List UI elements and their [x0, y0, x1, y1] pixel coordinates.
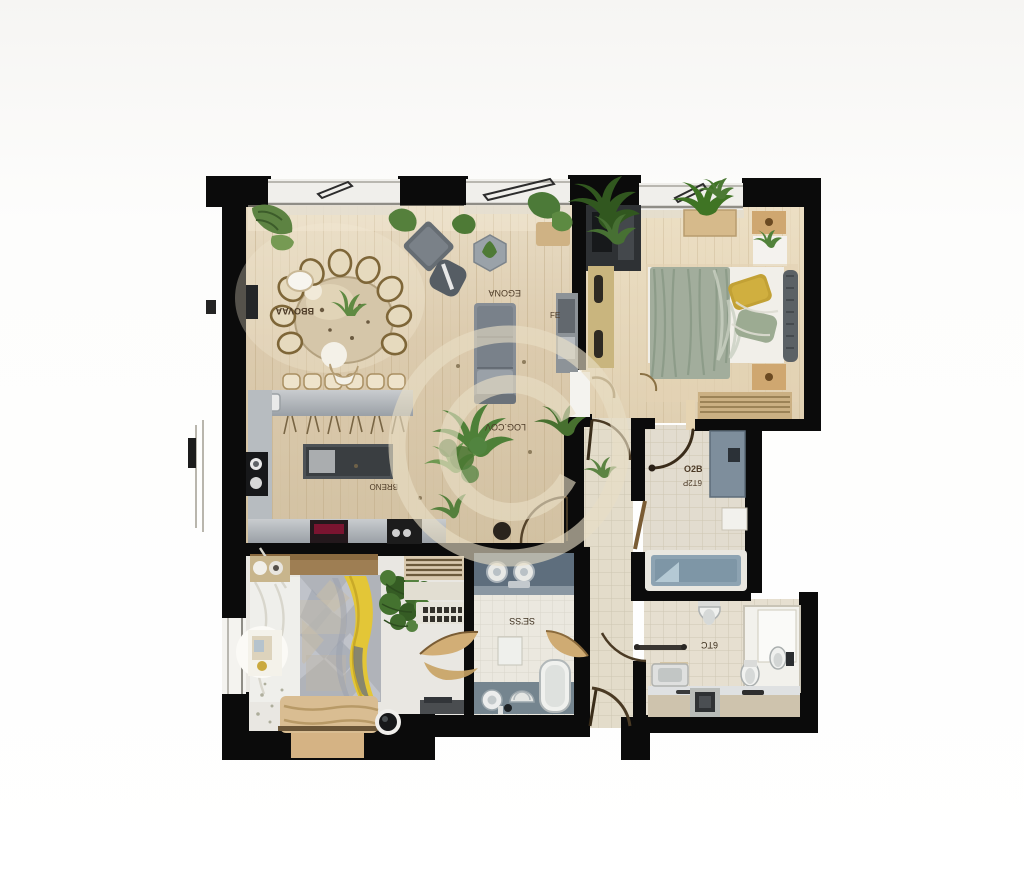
svg-text:BRENO: BRENO	[370, 482, 398, 491]
svg-text:O2B: O2B	[684, 464, 703, 474]
svg-text:FE: FE	[550, 311, 560, 320]
svg-text:SE'SS: SE'SS	[509, 616, 535, 626]
svg-text:LOG.COV: LOG.COV	[485, 422, 526, 432]
svg-text:BBOVAA: BBOVAA	[275, 306, 314, 316]
svg-text:6TC: 6TC	[700, 640, 718, 650]
svg-text:EGONA: EGONA	[488, 288, 521, 298]
svg-text:6T2P: 6T2P	[683, 478, 702, 487]
